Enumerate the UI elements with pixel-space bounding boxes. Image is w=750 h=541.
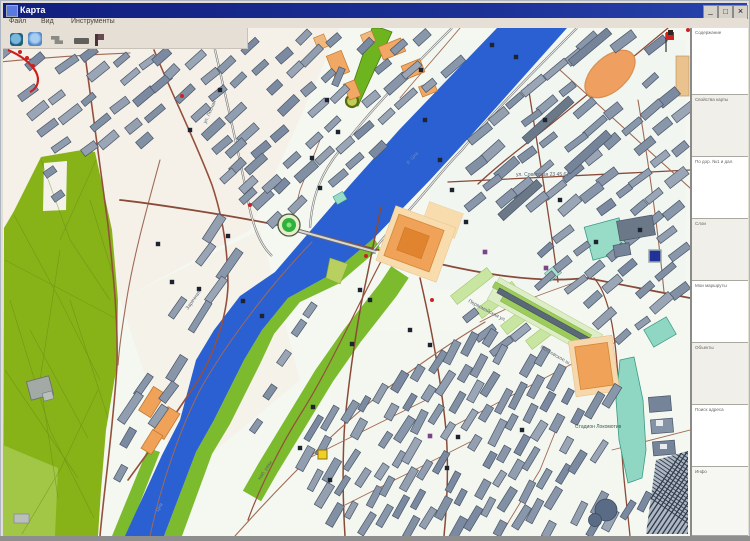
svg-text:Стадион Локомотив: Стадион Локомотив — [575, 424, 622, 430]
svg-text:ул. Советская 23 45 67: ул. Советская 23 45 67 — [516, 172, 569, 178]
